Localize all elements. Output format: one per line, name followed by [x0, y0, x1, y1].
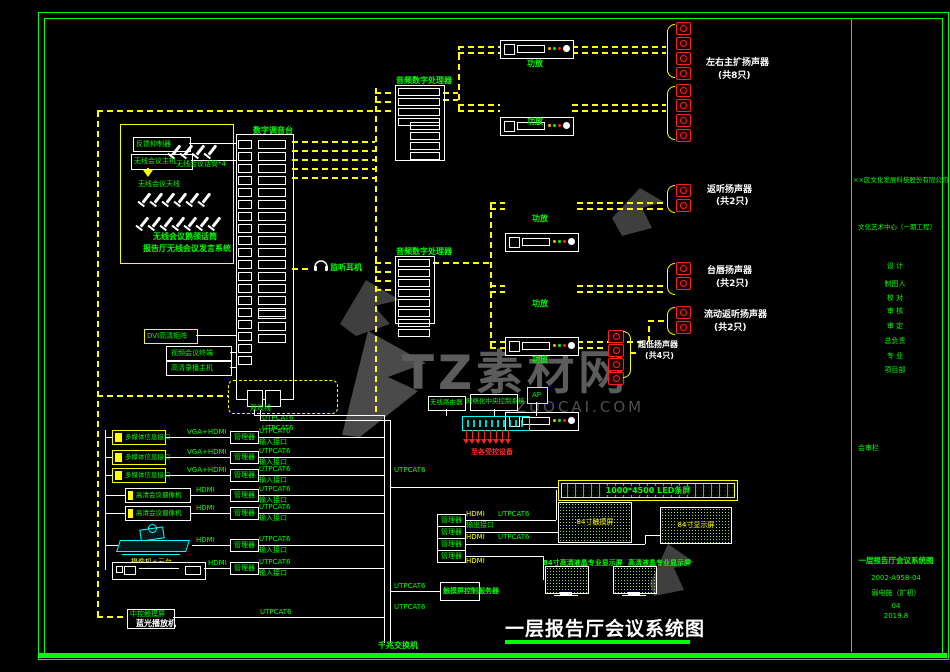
headphones-icon — [313, 258, 329, 272]
dsp-out-line — [458, 46, 460, 110]
control-out-arrows — [466, 430, 509, 439]
manager-node: 管理器 — [437, 550, 466, 563]
speaker-icon — [676, 129, 691, 142]
mixer-out-line — [292, 168, 375, 170]
mixer-port — [238, 344, 252, 353]
dsp-port — [398, 88, 440, 96]
speaker-bracket — [623, 331, 631, 378]
mixer-port — [258, 248, 286, 257]
feeder-line — [105, 430, 106, 570]
speaker-icon — [676, 277, 691, 290]
speaker-bracket — [667, 307, 675, 335]
manager-node: 管理器 — [230, 539, 259, 552]
manager-node: 管理器 — [230, 431, 259, 444]
dsp-out-line — [443, 99, 458, 101]
device-label: 高清会议摄像机 — [136, 492, 182, 499]
tb-drawing-name: 一层报告厅会议系统图 — [851, 557, 941, 566]
mobile-speaker-name: 流动返听扬声器 — [704, 310, 767, 321]
bluray-player-icon — [112, 562, 206, 580]
tb-date: 2019.8 — [853, 612, 939, 620]
row-line — [192, 545, 230, 546]
control-line — [97, 395, 228, 397]
mic-icon — [201, 192, 211, 203]
gigabit-switch-label: 千兆交换机 — [378, 641, 418, 651]
lip-speaker-qty: (共2只) — [716, 279, 749, 290]
device-line — [536, 402, 537, 416]
utp-label: UTPCAT6 — [394, 603, 425, 611]
tb-field: 总负责 — [855, 337, 935, 345]
dvi-matrix-label: DVI高清矩阵 — [147, 332, 187, 340]
tb-project: 文化艺术中心（一期工程） — [853, 224, 941, 231]
mixer-port — [238, 176, 252, 185]
amp-in-line — [490, 291, 505, 293]
arrow-down-icon — [484, 430, 485, 439]
arrow-down-icon — [466, 430, 467, 439]
preview-monitor — [613, 566, 657, 594]
drawing-title-underline — [505, 640, 690, 644]
arrow-down-icon — [490, 430, 491, 439]
mic-icon — [207, 144, 217, 155]
signal-label: VGA+HDMI — [187, 448, 227, 456]
control-line — [97, 110, 99, 617]
device-line — [230, 352, 236, 353]
row-line — [173, 617, 384, 618]
mixer-port — [258, 236, 286, 245]
dsp-port — [398, 108, 440, 116]
monitor-line — [292, 268, 312, 270]
gooseneck-mic-icons — [170, 144, 218, 156]
monitor-stand — [622, 595, 646, 596]
utp-trunk — [384, 415, 385, 643]
dsp2-in-line — [375, 271, 395, 273]
main-speaker-cluster — [676, 22, 691, 80]
tb-sheet: 04 — [853, 602, 939, 610]
main-speaker-qty: (共8只) — [718, 71, 751, 82]
speaker-line — [577, 208, 666, 210]
speaker-bracket — [667, 86, 675, 140]
central-control-label: 网络化中央控制系统 — [466, 398, 525, 405]
utp-trunk — [390, 420, 391, 643]
speaker-line — [577, 285, 666, 287]
speaker-icon — [676, 306, 691, 319]
foldback-speaker-cluster — [676, 184, 691, 212]
audio-bus — [375, 88, 377, 412]
to-devices-label: 至各受控设备 — [471, 448, 513, 456]
dsp-port — [398, 259, 430, 267]
feedback-suppressor-label: 反馈抑制器 — [136, 140, 171, 148]
cable-label: UTPCAT6 — [259, 447, 290, 455]
mixer-port — [238, 296, 252, 305]
signal-label: VGA+HDMI — [187, 466, 227, 474]
mixer-port — [258, 310, 286, 319]
mixer-port — [238, 164, 252, 173]
row-line — [162, 457, 230, 458]
cad-canvas: TZ素材网 TUZUOCAI.COM — [0, 0, 950, 672]
cable-label: UTPCAT6 — [259, 535, 290, 543]
mixer-port — [258, 164, 286, 173]
port-label: 输入接口 — [259, 438, 287, 446]
tb-field: 制图人 — [855, 280, 935, 288]
device-line — [446, 409, 447, 416]
control-line — [97, 616, 127, 618]
row-line — [464, 544, 645, 545]
mixer-port — [238, 236, 252, 245]
speaker-icon — [676, 321, 691, 334]
port-label: 输入接口 — [259, 514, 287, 522]
mixer-port — [238, 260, 252, 269]
amp-in-line — [458, 104, 500, 106]
cable-label: UTPCAT6 — [259, 427, 290, 435]
wireless-ap-label: AP — [527, 391, 546, 399]
mixer-out-line — [292, 159, 375, 161]
speaker-icon — [676, 22, 691, 35]
port-label: 输出接口 — [466, 521, 494, 529]
hdmi-label: HDMI — [466, 510, 485, 518]
dsp-port — [410, 152, 440, 160]
amp-in-line — [490, 208, 505, 210]
speaker-line — [577, 347, 605, 349]
device-label: 多媒体信息接口 — [125, 454, 171, 461]
speaker-line — [577, 291, 666, 293]
dsp-port — [398, 319, 430, 327]
row-line — [204, 568, 230, 569]
utp-label: UTPCAT6 — [394, 582, 425, 590]
dsp-in-line — [375, 110, 395, 112]
amp-in-line — [490, 341, 505, 343]
port-label: 输入接口 — [259, 476, 287, 484]
signal-label: HDMI — [196, 536, 215, 544]
power-amp — [505, 233, 579, 252]
manager-node: 管理器 — [230, 489, 259, 502]
manager-node: 管理器 — [230, 507, 259, 520]
arrow-down-icon — [478, 430, 479, 439]
mixer-port — [258, 140, 286, 149]
dsp-out-line — [443, 92, 458, 94]
arrow-down-icon — [472, 430, 473, 439]
row-line — [390, 487, 558, 488]
monitor-headphone-label: 监听耳机 — [330, 263, 362, 273]
mixer-port — [258, 296, 286, 305]
amp-in-line — [458, 46, 500, 48]
vc-terminal-label: 视频会议终端 — [171, 349, 213, 357]
cable-label: UTPCAT6 — [259, 485, 290, 493]
utp-trunk — [260, 420, 391, 421]
speaker-icon — [608, 344, 624, 357]
tb-field: 校 对 — [855, 294, 935, 302]
cable-label: UTPCAT6 — [259, 503, 290, 511]
row-line — [390, 591, 440, 592]
tb-company: ××区文化发展科技股份有限公司 — [853, 177, 941, 184]
dsp-port — [398, 299, 430, 307]
lip-speaker-cluster — [676, 262, 691, 290]
frame-bottom-band — [38, 653, 947, 658]
mixer-out-line — [292, 177, 375, 179]
signal-label: HDMI — [196, 504, 215, 512]
amp-in-line — [490, 285, 505, 287]
speaker-icon — [676, 114, 691, 127]
foldback-speaker-qty: (共2只) — [716, 197, 749, 208]
arrow-down-icon — [502, 430, 503, 439]
mixer-port — [258, 260, 286, 269]
mixer-port — [238, 332, 252, 341]
foldback-speaker-name: 返听扬声器 — [707, 185, 752, 196]
device-label: 多媒体信息接口 — [125, 434, 171, 441]
tb-field: 专 业 — [855, 352, 935, 360]
amp-label: 功放 — [532, 299, 548, 309]
screen-84-left-label: 84寸触摸屏 — [576, 518, 615, 526]
utp-label: UTPCAT6 — [394, 466, 425, 474]
speaker-icon — [676, 199, 691, 212]
speaker-line — [630, 352, 638, 354]
gooseneck-mic-icons — [138, 216, 222, 228]
speaker-icon — [676, 37, 691, 50]
manager-node: 管理器 — [230, 469, 259, 482]
tb-drawing-no: 2002-A958-04 — [853, 574, 939, 582]
led-strip-label: 1000*4500 LED条屏 — [604, 486, 693, 496]
device-line — [196, 335, 236, 336]
speaker-icon — [676, 184, 691, 197]
dsp-in-line — [375, 101, 395, 103]
sub-speaker-cluster — [608, 330, 624, 385]
mixer-port — [258, 212, 286, 221]
mixer-port — [238, 140, 252, 149]
wireless-router-label: 无线路由器 — [430, 399, 463, 406]
amp-in-line — [490, 202, 505, 204]
main-speaker-cluster — [676, 84, 691, 142]
cable-label: UTPCAT6 — [498, 510, 529, 518]
mixer-port — [238, 284, 252, 293]
amp-label: 功放 — [527, 117, 543, 127]
row-stub — [105, 457, 112, 458]
dsp-port — [398, 98, 440, 106]
speaker-bracket — [667, 24, 675, 78]
wireless-caption2: 报告厅无线会议发言系统 — [143, 244, 231, 254]
multimedia-port: 多媒体信息接口 — [112, 450, 166, 465]
tb-field: 设 计 — [855, 262, 935, 270]
signal-label: VGA+HDMI — [187, 428, 227, 436]
mixer-port — [258, 322, 286, 331]
lip-speaker-name: 台唇扬声器 — [707, 266, 752, 277]
dsp-port — [410, 142, 440, 150]
utp-trunk — [254, 415, 385, 416]
mixer-port — [238, 356, 252, 365]
hd-camera: 高清会议摄像机 — [125, 506, 191, 521]
device-line — [494, 409, 495, 416]
tb-field: 审 定 — [855, 322, 935, 330]
speaker-line — [577, 202, 666, 204]
amp-label: 功放 — [532, 214, 548, 224]
dsp-port — [398, 309, 430, 317]
sub-speaker-name: 超低扬声器 — [638, 340, 678, 350]
wireless-mics-label: 无线会议话筒*4 — [176, 160, 226, 168]
tb-review: 会审栏 — [858, 444, 879, 452]
port-label: 输入接口 — [259, 546, 287, 554]
dsp-port — [410, 132, 440, 140]
row-stub — [105, 495, 125, 496]
speaker-icon — [676, 99, 691, 112]
speaker-bracket — [667, 185, 675, 213]
mixer-out-line — [292, 141, 375, 143]
dsp2-in-line — [375, 262, 395, 264]
row-stub — [105, 475, 112, 476]
hd-camera: 高清会议摄像机 — [125, 488, 191, 503]
cable-label: UTPCAT6 — [498, 533, 529, 541]
manager-node: 管理器 — [230, 562, 259, 575]
mixer-port — [258, 152, 286, 161]
row-line — [645, 535, 660, 536]
speaker-line — [572, 104, 666, 106]
port-label: 输入接口 — [259, 569, 287, 577]
mixer-port — [238, 272, 252, 281]
mixer-port — [258, 334, 286, 343]
sub-speaker-qty: (共4只) — [645, 351, 674, 361]
cable-label: UTPCAT6 — [259, 465, 290, 473]
dsp-port — [410, 122, 440, 130]
touch-panel-label: 中控触摸屏 — [130, 610, 165, 618]
hdmi-label: HDMI — [466, 557, 485, 565]
device-line — [230, 367, 236, 368]
hdmi-label: HDMI — [466, 533, 485, 541]
power-amp — [505, 337, 579, 356]
mixer-port — [238, 188, 252, 197]
dsp-port — [398, 329, 430, 337]
mixer-port-column — [258, 140, 286, 317]
mixer-port — [258, 176, 286, 185]
antenna-line — [147, 168, 149, 172]
dsp-in-line — [375, 92, 395, 94]
manager-node: 管理器 — [230, 451, 259, 464]
dsp2-ports — [398, 259, 430, 337]
recorder-label: 高清录播主机 — [171, 364, 213, 372]
arrow-down-icon — [508, 430, 509, 439]
dsp2-out-line — [490, 202, 492, 348]
matrix-zone — [228, 380, 338, 414]
preview-monitor — [545, 566, 589, 594]
screen-84-left: 84寸触摸屏 — [558, 502, 632, 543]
mixer-port — [258, 272, 286, 281]
dsp2-in-line — [375, 280, 395, 282]
row-stub — [105, 545, 118, 546]
speaker-icon — [676, 67, 691, 80]
cable-label: UTPCAT6 — [259, 558, 290, 566]
control-line — [97, 110, 375, 112]
speaker-icon — [676, 262, 691, 275]
dsp-port — [398, 289, 430, 297]
speaker-line — [572, 52, 666, 54]
dsp1-ports — [398, 88, 440, 126]
tb-stage: 弱电施（扩初） — [853, 589, 939, 597]
speaker-bracket — [667, 263, 675, 295]
main-speaker-name: 左右主扩扬声器 — [706, 58, 769, 69]
mixer-port — [238, 200, 252, 209]
mixer-port — [258, 188, 286, 197]
mixer-port — [238, 248, 252, 257]
dsp2-out-line — [433, 262, 490, 264]
row-line — [162, 475, 230, 476]
row-line — [162, 437, 230, 438]
control-patch-panel — [462, 416, 530, 431]
mixer-out-line — [292, 150, 375, 152]
mixer-port — [238, 212, 252, 221]
row-line — [190, 513, 230, 514]
wireless-caption1: 无线会议鹅颈话筒 — [153, 232, 217, 242]
amp-label: 功放 — [527, 59, 543, 69]
row-line — [190, 495, 230, 496]
tb-field: 项目部 — [855, 366, 935, 374]
speaker-line — [572, 46, 666, 48]
dsp2-in-line — [375, 289, 395, 291]
device-label: 高清会议摄像机 — [136, 510, 182, 517]
speaker-icon — [608, 372, 624, 385]
speaker-icon — [608, 358, 624, 371]
screen-84-right-label: 84寸显示屏 — [677, 521, 716, 529]
speaker-icon — [608, 330, 624, 343]
arrow-down-icon — [496, 430, 497, 439]
row-stub — [105, 437, 112, 438]
speaker-line — [648, 320, 666, 322]
bluray-label: 蓝光播放机 — [136, 619, 176, 629]
mixer-port — [258, 224, 286, 233]
speaker-line — [648, 320, 650, 342]
multimedia-port: 多媒体信息接口 — [112, 468, 166, 483]
dsp-port — [398, 269, 430, 277]
mixer-port-column — [238, 140, 252, 365]
tb-field: 审 核 — [855, 307, 935, 315]
speaker-icon — [676, 84, 691, 97]
dsp-port — [398, 279, 430, 287]
wireless-host-label: 无线会议主机 — [134, 157, 176, 165]
screen-84-right: 84寸显示屏 — [660, 507, 732, 544]
gooseneck-mic-icons — [140, 192, 212, 204]
cable-label: UTPCAT6 — [260, 608, 291, 616]
dsp1-ports — [398, 122, 440, 160]
signal-label: HDMI — [208, 559, 227, 567]
device-label: 多媒体信息接口 — [125, 472, 171, 479]
amp-label: 功放 — [532, 355, 548, 365]
amp-in-line — [490, 347, 505, 349]
mobile-speaker-qty: (共2只) — [714, 323, 747, 334]
amp-in-line — [458, 52, 500, 54]
mixer-port-column — [258, 310, 286, 343]
signal-label: HDMI — [196, 486, 215, 494]
speaker-line — [572, 110, 666, 112]
power-amp — [500, 40, 574, 59]
wireless-antenna-label: 无线会议天线 — [138, 180, 180, 188]
touch-control-server-label: 触摸屏控制服务器 — [443, 587, 499, 595]
mixer-port — [238, 224, 252, 233]
speaker-icon — [676, 52, 691, 65]
mic-icon — [211, 216, 221, 227]
mixer-port — [238, 308, 252, 317]
row-line — [556, 490, 557, 520]
led-strip: 1000*4500 LED条屏 — [558, 480, 738, 501]
mixer-port — [238, 152, 252, 161]
drawing-title: 一层报告厅会议系统图 — [505, 614, 705, 641]
mixer-port — [238, 320, 252, 329]
mixer-port — [258, 284, 286, 293]
mobile-speaker-cluster — [676, 306, 691, 334]
amp-in-line — [458, 110, 500, 112]
monitor-stand — [554, 595, 578, 596]
row-line — [645, 535, 646, 544]
row-stub — [105, 513, 125, 514]
mixer-port — [258, 200, 286, 209]
multimedia-port: 多媒体信息接口 — [112, 430, 166, 445]
